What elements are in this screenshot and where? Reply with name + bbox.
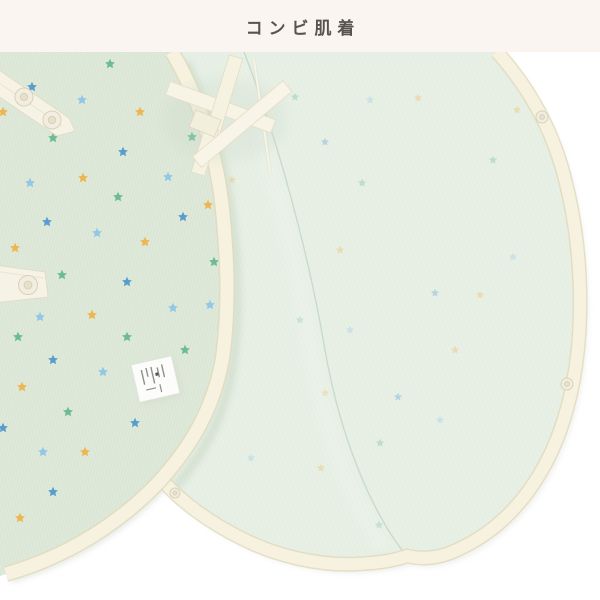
page-title: コンビ肌着 [240, 14, 361, 39]
garment-flatlay-illustration [0, 52, 600, 600]
snap-button [15, 88, 33, 106]
snap-button [170, 488, 180, 498]
header-band: コンビ肌着 [0, 0, 600, 52]
snap-button [43, 111, 61, 129]
snap-button [536, 111, 548, 123]
product-photo [0, 52, 600, 600]
snap-button [19, 276, 38, 295]
snap-button [561, 378, 573, 390]
